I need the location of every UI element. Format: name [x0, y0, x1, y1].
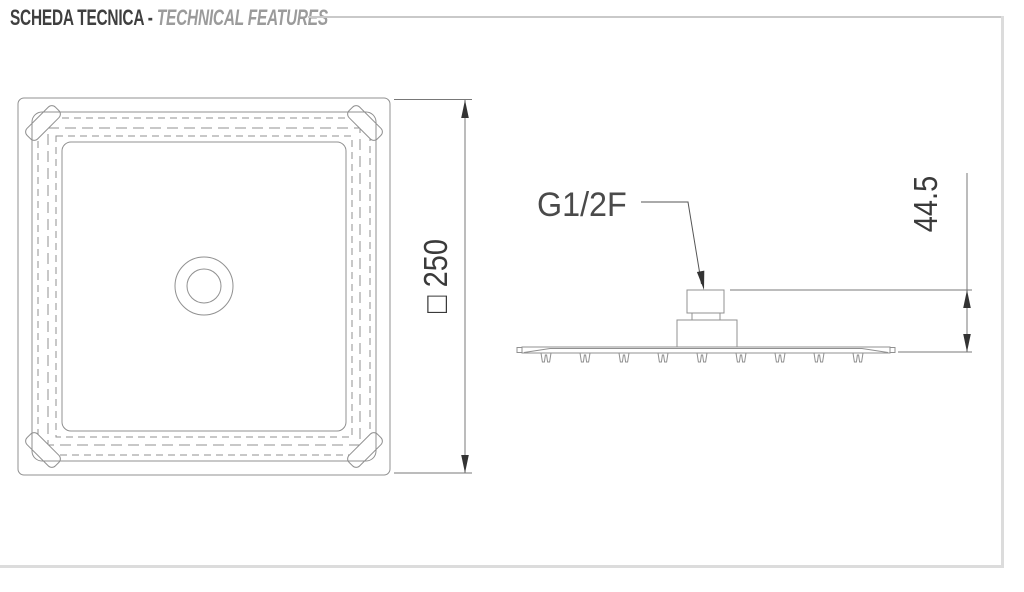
- spray-nozzle: [814, 353, 824, 362]
- dim-250-arrow-up: [461, 100, 469, 118]
- dim-445-arrow-up: [963, 290, 971, 308]
- connector-neck: [692, 313, 720, 320]
- plate-end-cap-left: [517, 348, 522, 353]
- side-view: [517, 290, 895, 362]
- connector-thread-block: [687, 290, 724, 313]
- spray-nozzle: [619, 353, 629, 362]
- thread-label: G1/2F: [537, 186, 627, 224]
- dimension-44-5: 44.5: [730, 173, 972, 352]
- spray-nozzle: [775, 353, 785, 362]
- corner-chamfers: [24, 104, 385, 470]
- face-dashed-middle: [48, 128, 360, 445]
- thread-callout: G1/2F: [537, 186, 704, 290]
- dim-250-label: □ 250: [417, 239, 454, 313]
- spray-nozzles: [541, 353, 863, 362]
- face-frame-outline: [32, 112, 376, 461]
- connector-base-block: [677, 320, 737, 347]
- plate-profile: [522, 347, 890, 353]
- spray-nozzle: [853, 353, 863, 362]
- center-ring-inner: [187, 269, 221, 303]
- face-dashed-outer: [38, 118, 370, 455]
- dimension-250: □ 250: [394, 100, 472, 474]
- technical-sheet-page: { "header": { "title_primary": "SCHEDA T…: [0, 0, 1024, 592]
- spray-nozzle: [736, 353, 746, 362]
- spray-nozzle: [580, 353, 590, 362]
- technical-drawing: □ 250: [0, 0, 1024, 592]
- chamfer-top-right: [346, 104, 385, 143]
- thread-leader-line: [641, 202, 702, 284]
- outer-body-outline: [18, 98, 390, 475]
- dim-445-label: 44.5: [907, 176, 944, 233]
- dim-445-arrow-down: [963, 334, 971, 352]
- center-ring-outer: [175, 257, 233, 315]
- thread-leader-arrow: [697, 271, 704, 290]
- dim-250-arrow-down: [461, 455, 469, 473]
- top-view: [18, 98, 390, 475]
- spray-nozzle: [658, 353, 668, 362]
- spray-nozzle: [541, 353, 551, 362]
- face-dashed-inner: [56, 136, 352, 437]
- plate-bevel-line: [524, 349, 888, 353]
- plate-end-cap-right: [890, 348, 895, 353]
- chamfer-bottom-right: [346, 431, 385, 470]
- chamfer-top-left: [24, 104, 63, 143]
- spray-area-outline: [62, 142, 346, 431]
- chamfer-bottom-left: [24, 431, 63, 470]
- spray-nozzle: [697, 353, 707, 362]
